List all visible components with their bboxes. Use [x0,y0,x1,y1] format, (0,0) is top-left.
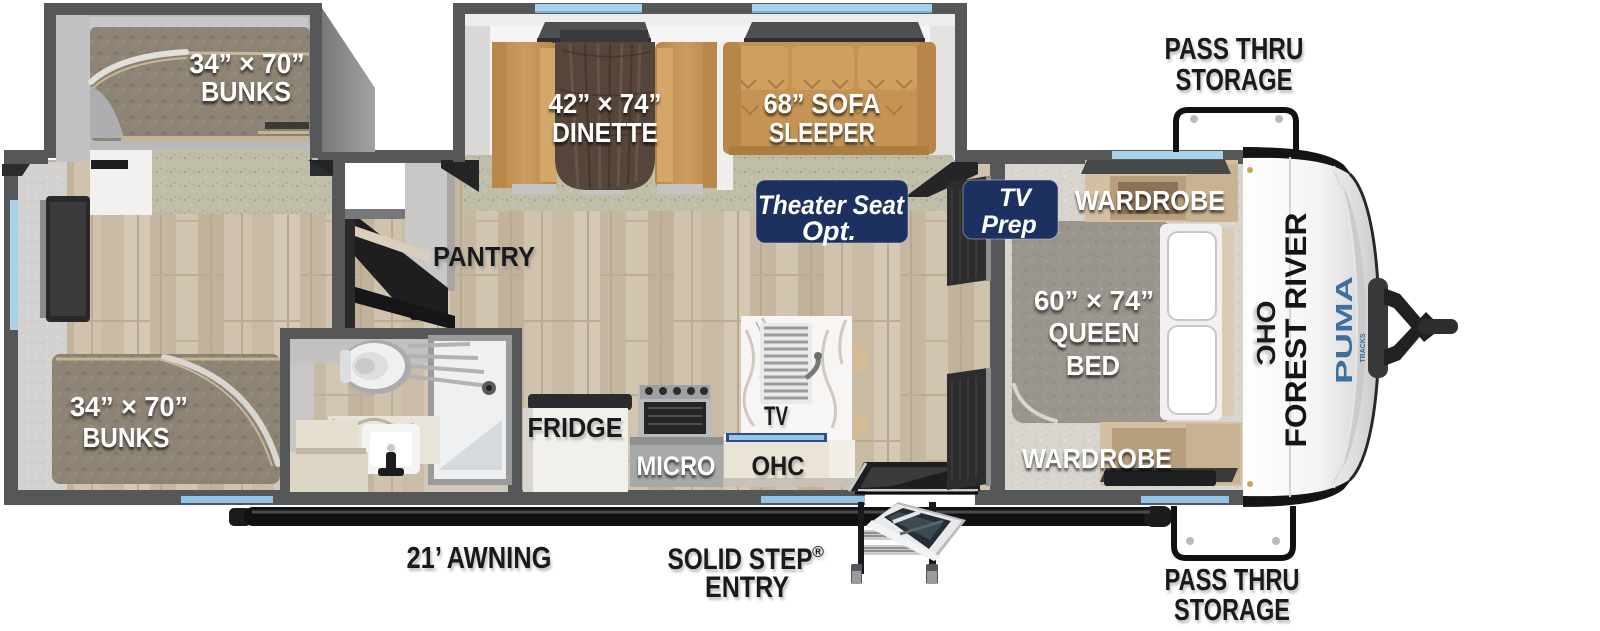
svg-text:®: ® [812,544,824,561]
svg-text:34” × 70”: 34” × 70” [70,391,188,422]
svg-text:OHC: OHC [1251,301,1281,366]
svg-text:PASS THRU: PASS THRU [1165,31,1304,66]
svg-text:21’ AWNING: 21’ AWNING [407,540,552,575]
svg-text:Opt.: Opt. [802,216,856,246]
svg-text:BUNKS: BUNKS [83,422,170,453]
svg-text:WARDROBE: WARDROBE [1022,443,1172,474]
svg-text:STORAGE: STORAGE [1174,592,1290,627]
svg-text:68” SOFA: 68” SOFA [764,88,881,119]
svg-text:DINETTE: DINETTE [552,117,658,148]
svg-text:TV: TV [764,401,788,431]
svg-text:MICRO: MICRO [637,451,716,481]
svg-text:PANTRY: PANTRY [433,241,535,272]
svg-text:42” × 74”: 42” × 74” [549,88,662,119]
svg-text:FOREST RIVER: FOREST RIVER [1280,212,1313,447]
svg-text:BED: BED [1066,350,1120,381]
svg-text:ENTRY: ENTRY [705,571,789,604]
svg-text:OHC: OHC [752,451,805,481]
svg-text:WARDROBE: WARDROBE [1075,185,1225,216]
svg-text:SLEEPER: SLEEPER [769,117,875,148]
svg-text:QUEEN: QUEEN [1049,317,1140,348]
svg-text:34” × 70”: 34” × 70” [190,48,305,79]
svg-text:PUMA: PUMA [1331,276,1357,384]
svg-text:FRIDGE: FRIDGE [528,412,623,443]
svg-text:TRACKS: TRACKS [1360,333,1367,362]
svg-text:TV: TV [999,184,1033,212]
svg-text:STORAGE: STORAGE [1176,62,1293,97]
svg-text:60” × 74”: 60” × 74” [1034,285,1154,316]
svg-text:Prep: Prep [981,211,1037,239]
svg-text:BUNKS: BUNKS [201,76,291,107]
